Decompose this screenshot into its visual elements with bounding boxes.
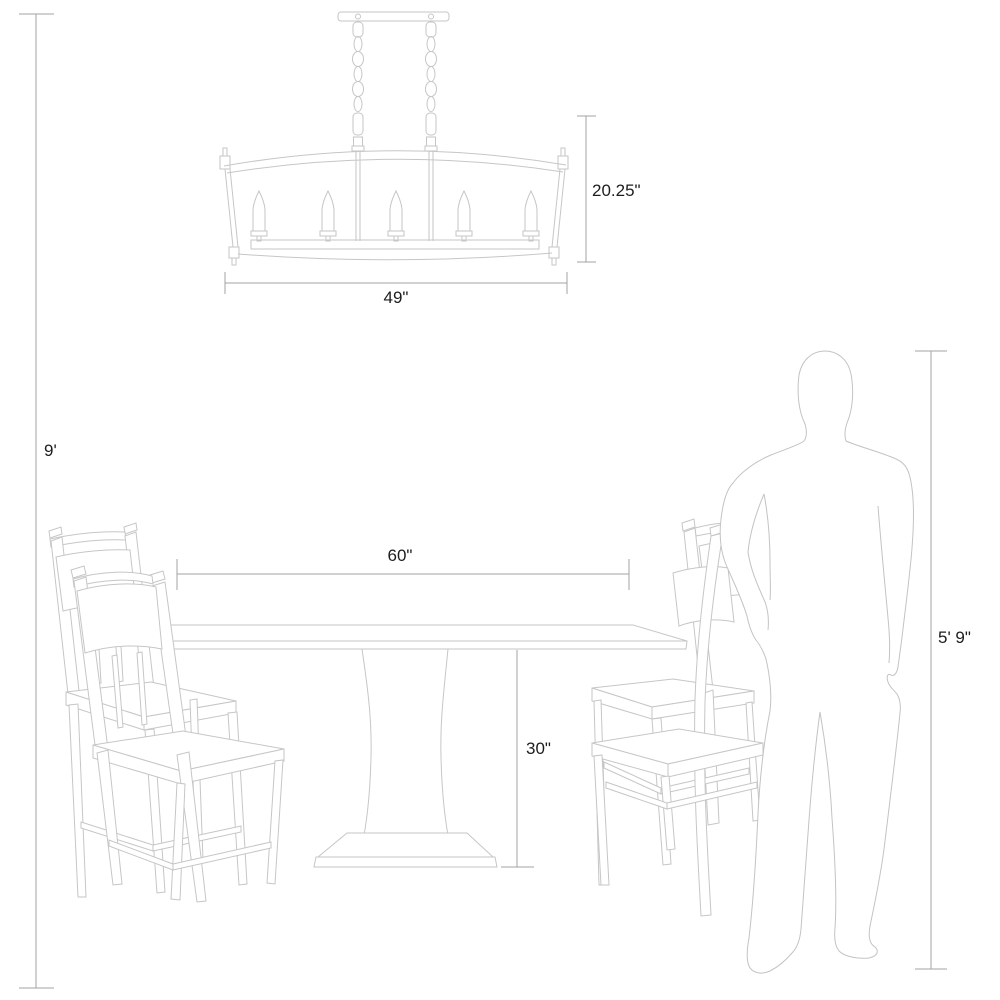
person-height-label: 5' 9"	[938, 628, 971, 647]
chandelier-chain-left	[352, 22, 364, 151]
canopy-screw-right	[429, 14, 434, 19]
ceiling-height-label: 9'	[44, 441, 57, 460]
candle-1	[251, 191, 267, 241]
dim-person-height: 5' 9"	[915, 351, 971, 969]
table-height-label: 30"	[526, 739, 551, 758]
tabletop-edge	[164, 641, 687, 649]
scale-diagram-canvas: 9' 20.25" 49" 60" 30" 5' 9"	[0, 0, 1000, 1000]
canopy-screw-left	[356, 14, 361, 19]
chandelier-height-label: 20.25"	[592, 181, 641, 200]
chandelier-chain-right	[425, 22, 437, 151]
human-figure	[720, 351, 913, 973]
chandelier-width-label: 49"	[384, 288, 409, 307]
chair-left-front	[71, 566, 284, 902]
dimension-diagram: 9' 20.25" 49" 60" 30" 5' 9"	[0, 0, 1000, 1000]
dim-table-height: 30"	[501, 650, 551, 867]
dim-ceiling-height: 9'	[19, 14, 57, 988]
chandelier	[220, 12, 568, 265]
chandelier-canopy	[338, 12, 449, 21]
dim-chandelier-width: 49"	[225, 272, 567, 307]
dim-chandelier-height: 20.25"	[577, 116, 641, 262]
candle-5	[523, 191, 539, 241]
dim-table-width: 60"	[177, 546, 629, 590]
table-width-label: 60"	[388, 546, 413, 565]
table-base-lower	[314, 857, 497, 867]
candle-4	[456, 191, 472, 241]
tabletop-surface	[164, 625, 687, 641]
table-base-upper	[318, 833, 493, 857]
candle-3	[388, 191, 404, 241]
chandelier-frame	[220, 148, 568, 265]
human-silhouette	[720, 351, 913, 973]
table-pedestal-column	[362, 649, 450, 847]
chandelier-candles	[251, 191, 539, 241]
candle-2	[320, 191, 336, 241]
chandelier-stems	[356, 151, 433, 241]
chair-back-panel	[77, 584, 162, 653]
